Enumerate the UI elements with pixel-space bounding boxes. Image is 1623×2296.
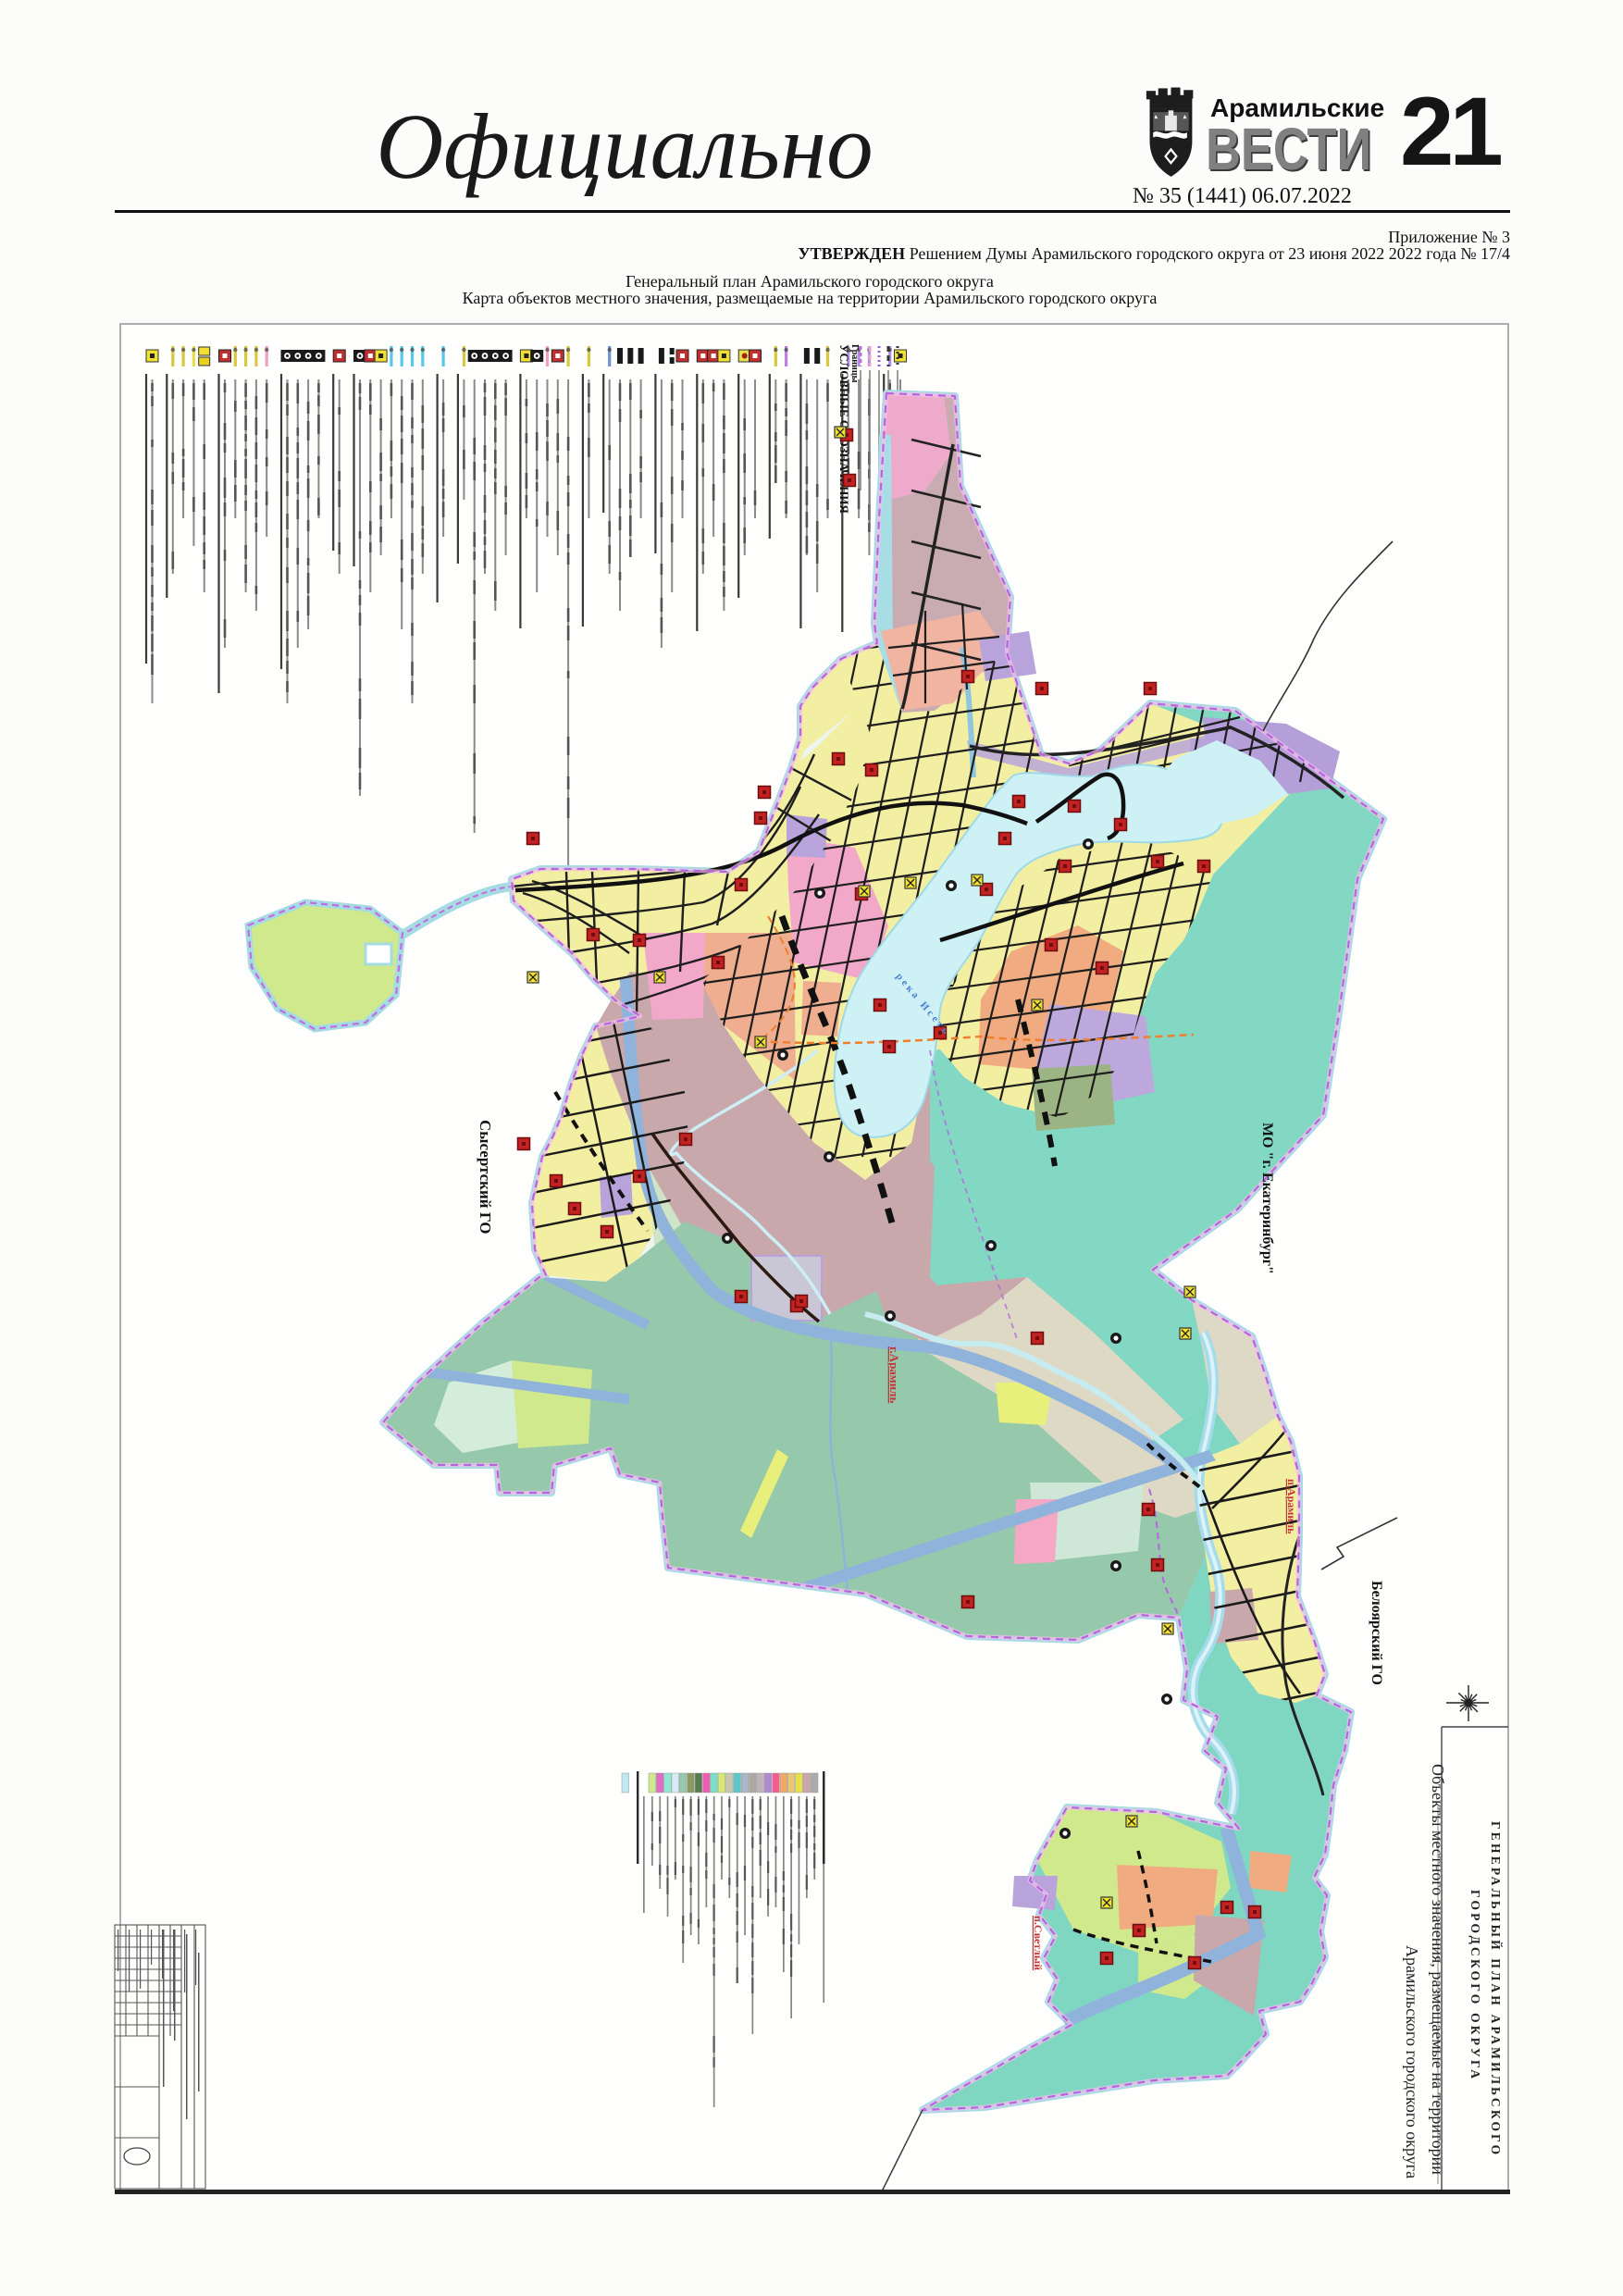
svg-text:п.Светлый: п.Светлый — [1032, 1916, 1045, 1970]
svg-text:ГОРОДСКОГО ОКРУГА: ГОРОДСКОГО ОКРУГА — [1468, 1890, 1482, 2081]
svg-text:ГЕНЕРАЛЬНЫЙ ПЛАН АРАМИЛЬСКОГО: ГЕНЕРАЛЬНЫЙ ПЛАН АРАМИЛЬСКОГО — [1489, 1821, 1503, 2157]
svg-text:Объекты местного значения, раз: Объекты местного значения, размещаемые н… — [1429, 1764, 1447, 2175]
svg-text:МО "г. Екатеринбург": МО "г. Екатеринбург" — [1259, 1123, 1275, 1274]
svg-text:Сысертский ГО: Сысертский ГО — [477, 1120, 494, 1234]
svg-text:Белоярский ГО: Белоярский ГО — [1369, 1581, 1384, 1685]
svg-text:Границы: Границы — [849, 344, 860, 383]
svg-text:Арамильского городского округа: Арамильского городского округа — [1403, 1945, 1421, 2178]
svg-text:п.Арамиль: п.Арамиль — [1285, 1479, 1298, 1534]
svg-text:г.Арамиль: г.Арамиль — [887, 1347, 901, 1403]
